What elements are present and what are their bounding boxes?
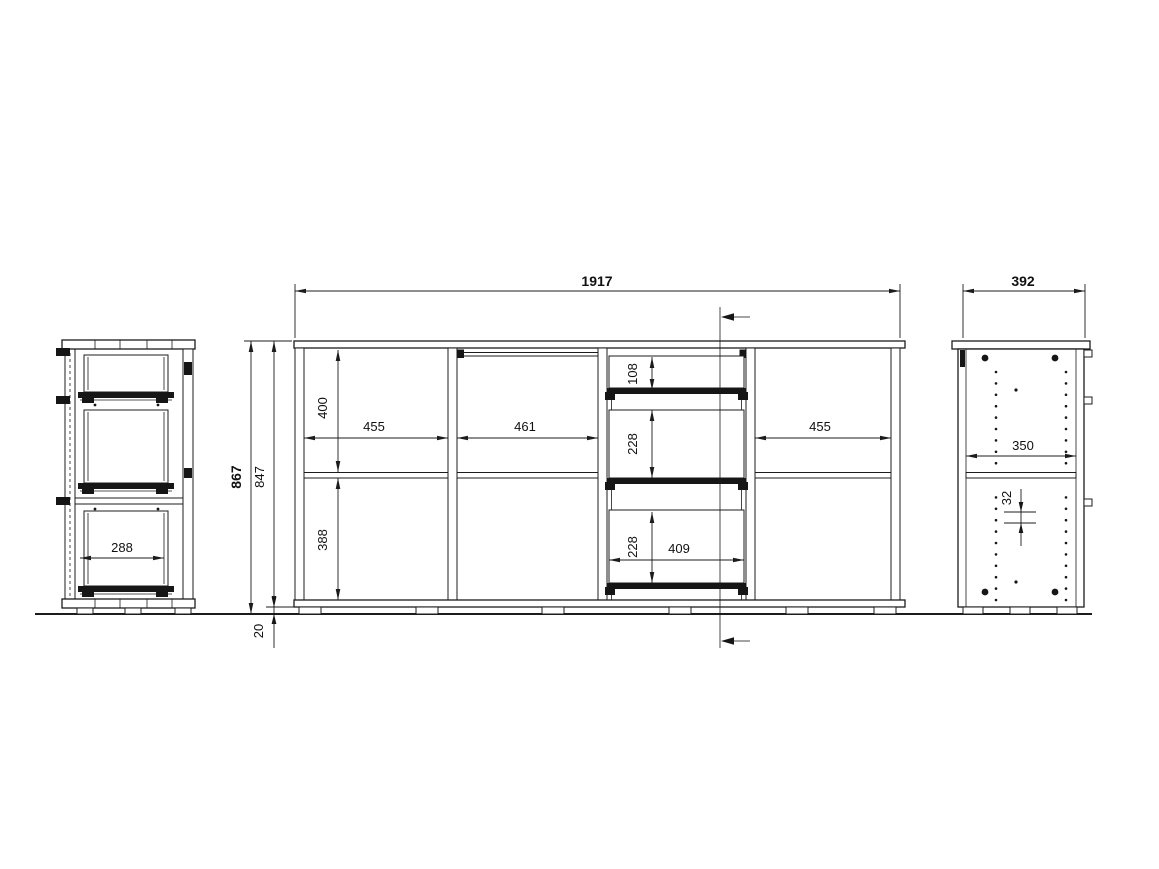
foot <box>963 607 983 614</box>
dim-middle-compartment-width: 461 <box>457 419 598 438</box>
dim-label-hole-pitch: 32 <box>999 491 1014 505</box>
screw <box>1052 589 1059 596</box>
right-side-panel-view <box>952 341 1092 614</box>
foot <box>1057 607 1077 614</box>
dim-lower-section-height: 388 <box>315 478 338 600</box>
foot <box>175 608 191 614</box>
dim-right-compartment-width: 455 <box>755 419 891 438</box>
divider-2 <box>598 348 607 601</box>
top-board <box>62 340 195 349</box>
mid-rail <box>75 498 183 504</box>
divider-1 <box>448 348 457 601</box>
dim-plinth-height: 20 <box>251 596 276 648</box>
dim-label-middle-compartment-width: 461 <box>514 419 536 434</box>
top-board <box>294 341 905 348</box>
drawer-box-middle <box>78 410 174 494</box>
dim-label-drawer-inner-depth: 288 <box>111 540 133 555</box>
top-board <box>952 341 1090 349</box>
foot <box>125 608 141 614</box>
screw <box>1052 355 1059 362</box>
divider-3 <box>746 348 755 601</box>
dim-label-right-compartment-width: 455 <box>809 419 831 434</box>
dim-label-drawer-middle-height: 228 <box>625 433 640 455</box>
dim-label-body-height: 847 <box>252 466 267 488</box>
technical-drawing-canvas: 288 <box>0 0 1159 869</box>
bottom-board <box>62 599 195 608</box>
shelf <box>755 473 891 479</box>
screw <box>982 589 989 596</box>
bottom-board <box>294 600 905 607</box>
dim-label-depth: 392 <box>1011 273 1035 289</box>
foot <box>874 607 896 614</box>
drawer-box-top <box>78 355 174 403</box>
dim-label-drawer-top-height: 108 <box>625 363 640 385</box>
hinge-tab <box>56 497 70 505</box>
foot <box>786 607 808 614</box>
screw <box>982 355 989 362</box>
dim-label-total-height: 867 <box>228 465 244 489</box>
front-elevation-view <box>294 341 905 614</box>
hinge-tab <box>56 396 70 404</box>
dim-depth: 392 <box>963 273 1085 338</box>
dim-label-shelf-depth: 350 <box>1012 438 1034 453</box>
dim-label-lower-section-height: 388 <box>315 529 330 551</box>
dim-label-drawer-bottom-height: 228 <box>625 536 640 558</box>
bracket <box>1084 350 1092 357</box>
dim-label-left-compartment-width: 455 <box>363 419 385 434</box>
foot <box>1010 607 1030 614</box>
dim-upper-section-height: 400 <box>315 350 338 472</box>
shelf <box>457 473 598 479</box>
right-side-panel <box>891 348 900 601</box>
left-side-panel <box>295 348 304 601</box>
foot <box>669 607 691 614</box>
dim-total-width: 1917 <box>295 273 900 338</box>
top-rail <box>457 353 598 357</box>
dim-left-compartment-width: 455 <box>304 419 448 438</box>
dim-label-drawer-inner-width: 409 <box>668 541 690 556</box>
bracket <box>1084 397 1092 404</box>
shelf <box>304 473 448 479</box>
furniture-dimension-drawing: 288 <box>0 0 1159 869</box>
back-panel <box>183 349 193 608</box>
left-side-section-view: 288 <box>56 340 195 614</box>
bracket <box>1084 499 1092 506</box>
foot <box>542 607 564 614</box>
shelf <box>966 473 1076 479</box>
foot <box>77 608 93 614</box>
dim-label-plinth-height: 20 <box>251 624 266 638</box>
foot <box>299 607 321 614</box>
foot <box>416 607 438 614</box>
dim-label-total-width: 1917 <box>581 273 612 289</box>
dim-label-upper-section-height: 400 <box>315 397 330 419</box>
hinge-tab <box>56 348 70 356</box>
